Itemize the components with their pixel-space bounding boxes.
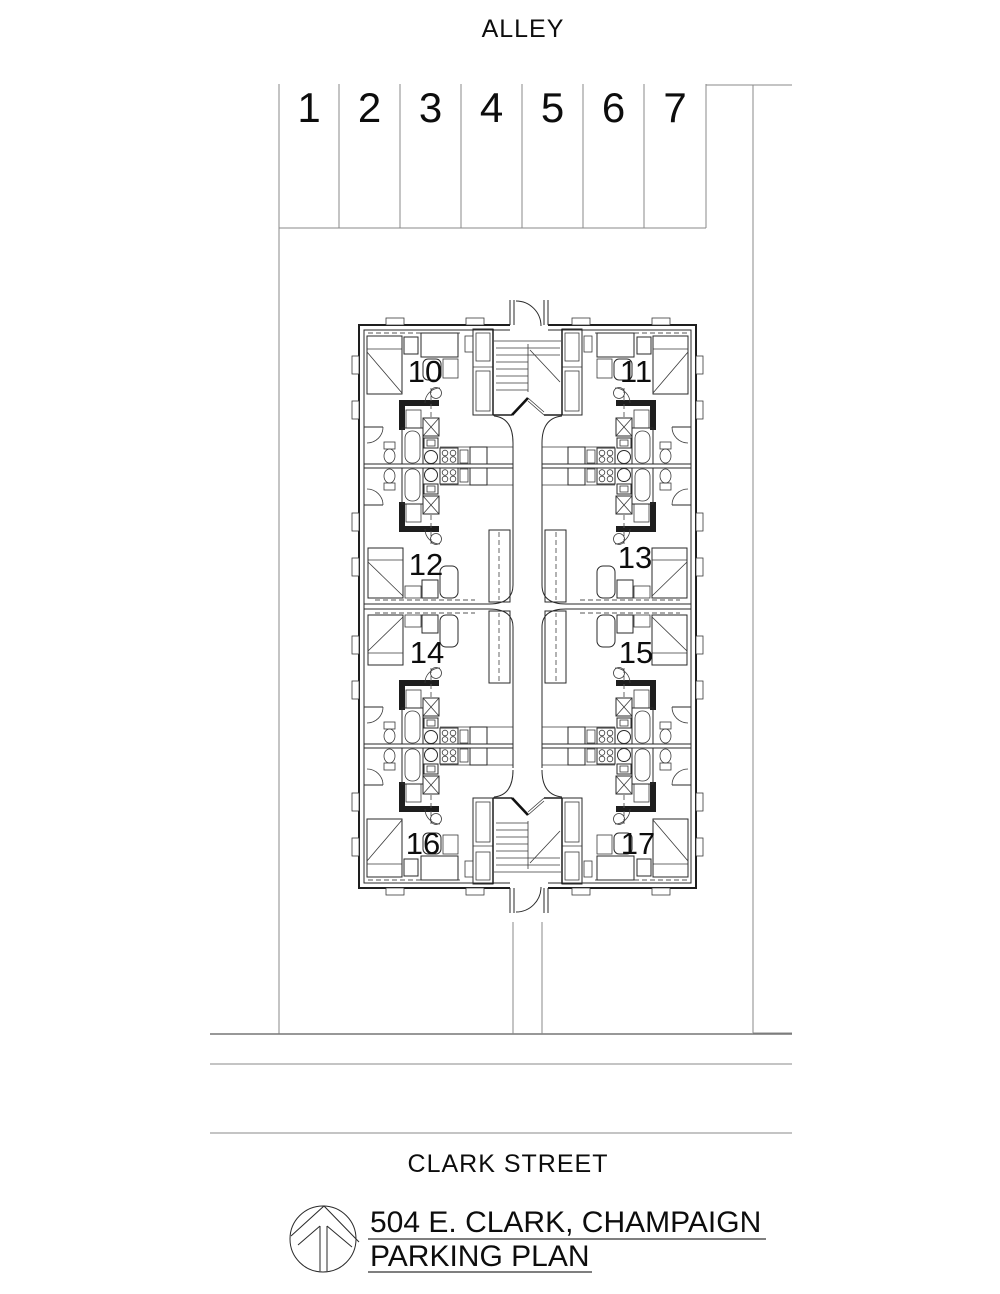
alley-label: ALLEY bbox=[482, 15, 565, 43]
parking-plan-sheet: ALLEY 1 2 3 4 5 6 7 10 11 12 13 14 15 16… bbox=[0, 0, 1000, 1294]
unit-10-bath-kitchen bbox=[364, 388, 513, 465]
unit-label-10: 10 bbox=[408, 354, 442, 389]
unit-17-bath-kitchen bbox=[542, 748, 691, 825]
unit-label-12: 12 bbox=[409, 547, 443, 582]
title-line-1: 504 E. CLARK, CHAMPAIGN bbox=[370, 1206, 761, 1239]
entry-walkway bbox=[513, 922, 542, 1034]
unit-15-furniture bbox=[545, 611, 687, 683]
central-corridor bbox=[489, 443, 566, 768]
title-block: 504 E. CLARK, CHAMPAIGN PARKING PLAN bbox=[290, 1206, 766, 1273]
stall-number-5: 5 bbox=[541, 84, 564, 131]
unit-label-11: 11 bbox=[620, 354, 652, 389]
north-windows bbox=[386, 318, 670, 325]
stall-number-4: 4 bbox=[480, 84, 503, 131]
unit-16-bath-kitchen bbox=[364, 748, 513, 825]
exterior-wall-outer bbox=[359, 325, 696, 888]
stall-number-3: 3 bbox=[419, 84, 442, 131]
unit-12-bath-kitchen bbox=[364, 468, 513, 545]
unit-label-13: 13 bbox=[618, 540, 652, 575]
unit-label-17: 17 bbox=[621, 826, 655, 861]
clark-street-lines bbox=[210, 1034, 792, 1133]
parking-stall-numbers: 1 2 3 4 5 6 7 bbox=[297, 84, 686, 131]
exterior-wall-inner bbox=[364, 330, 691, 883]
stall-number-1: 1 bbox=[297, 84, 320, 131]
unit-14-bath-kitchen bbox=[364, 668, 513, 745]
clark-street-label: CLARK STREET bbox=[408, 1150, 609, 1178]
unit-label-14: 14 bbox=[410, 635, 444, 670]
stall-number-2: 2 bbox=[358, 84, 381, 131]
unit-numbers: 10 11 12 13 14 15 16 17 bbox=[406, 354, 655, 861]
party-walls bbox=[364, 464, 691, 748]
unit-13-furniture bbox=[545, 530, 687, 602]
unit-11-bath-kitchen bbox=[542, 388, 691, 465]
unit-13-bath-kitchen bbox=[542, 468, 691, 545]
west-windows bbox=[352, 356, 359, 856]
building-floor-plan bbox=[352, 300, 703, 913]
unit-15-bath-kitchen bbox=[542, 668, 691, 745]
stall-number-7: 7 bbox=[663, 84, 686, 131]
parking-plan-drawing: ALLEY 1 2 3 4 5 6 7 10 11 12 13 14 15 16… bbox=[0, 0, 1000, 1294]
unit-label-15: 15 bbox=[619, 635, 653, 670]
east-windows bbox=[696, 356, 703, 856]
north-arrow-logo-icon bbox=[290, 1206, 359, 1272]
south-windows bbox=[386, 888, 670, 895]
unit-label-16: 16 bbox=[406, 826, 440, 861]
title-line-2: PARKING PLAN bbox=[370, 1240, 590, 1273]
stall-number-6: 6 bbox=[602, 84, 625, 131]
